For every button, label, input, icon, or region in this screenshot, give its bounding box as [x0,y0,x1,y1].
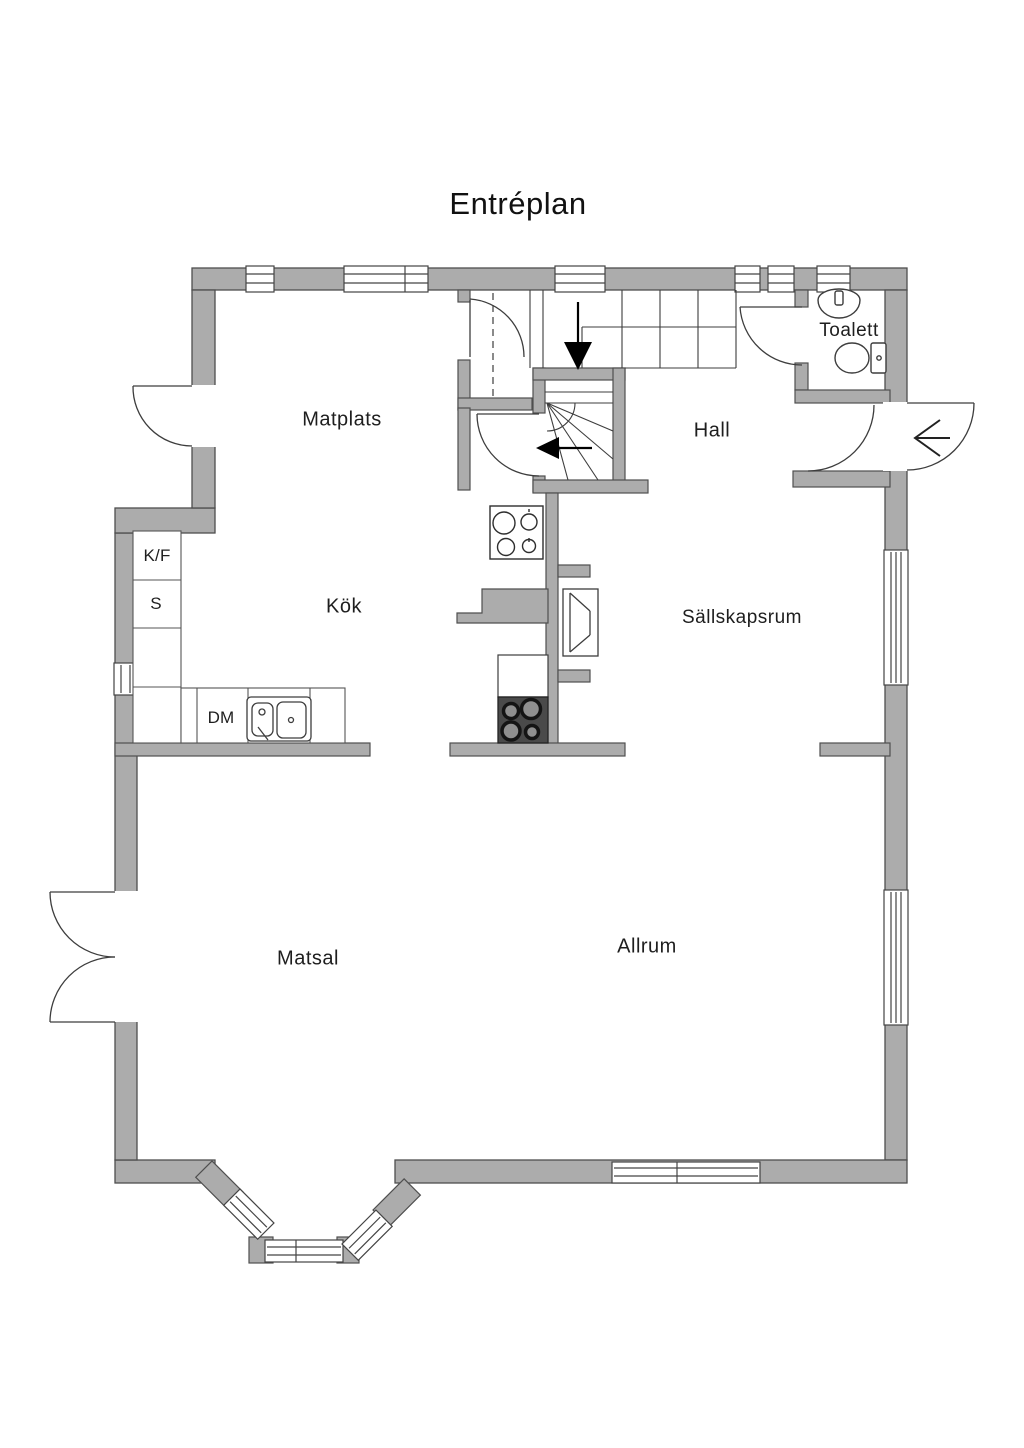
door-french-matsal [50,892,115,1022]
window-bottom [612,1162,760,1183]
stove [498,697,548,743]
room-label-matplats: Matplats [302,409,382,432]
label-dishwasher: DM [208,708,235,728]
window-right-1 [884,550,908,685]
window-top-1 [246,266,274,292]
label-pantry: S [150,594,162,614]
bay-window-center [265,1240,343,1262]
floorplan-canvas: Entréplan [0,0,1024,1448]
window-top-2 [344,266,428,292]
entry-arrow [915,420,950,456]
cooktop [490,506,543,559]
window-top-6 [817,266,850,292]
door-stair-exit [477,414,539,476]
window-top-3 [555,266,605,292]
fireplace [563,589,598,656]
room-label-kok: Kök [326,596,362,619]
window-top-4 [735,266,760,292]
toilet [835,343,886,373]
door-toalett [740,307,802,365]
stair-down-arrow [564,302,592,370]
window-top-5 [768,266,794,292]
door-matplats-exterior [133,386,192,446]
winder-stairs [545,392,613,480]
washbasin [818,289,860,318]
stair-exit-arrow [536,437,592,459]
room-label-sallskapsrum: Sällskapsrum [682,607,802,629]
room-label-allrum: Allrum [617,936,677,959]
door-closet [470,299,524,357]
windows [114,266,908,1262]
label-fridge-freezer: K/F [143,546,170,566]
room-label-matsal: Matsal [277,948,339,971]
window-right-2 [884,890,908,1025]
room-label-toalett: Toalett [819,320,878,342]
staircase-upper-flight [530,290,736,368]
counter-middle [498,655,548,697]
kitchen-sink [247,697,311,741]
room-label-hall: Hall [694,420,730,443]
floorplan-drawing [0,0,1024,1448]
